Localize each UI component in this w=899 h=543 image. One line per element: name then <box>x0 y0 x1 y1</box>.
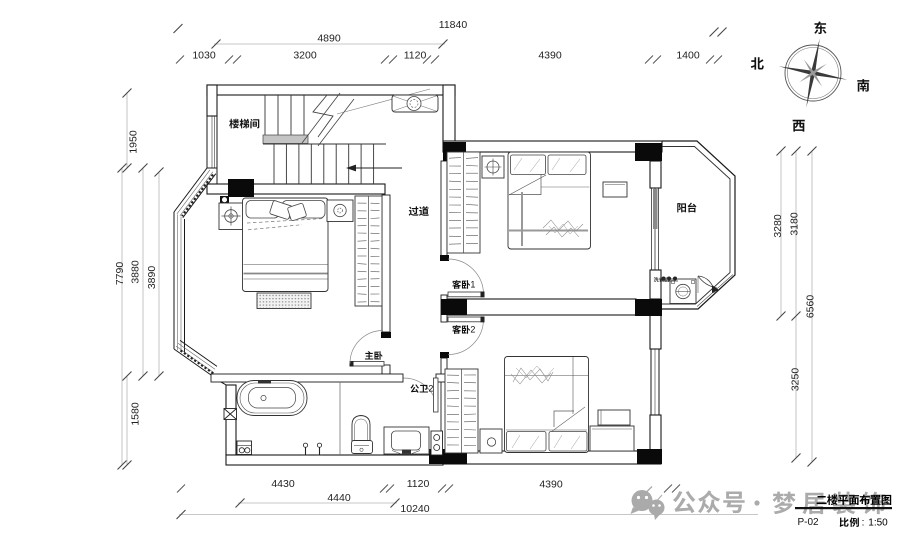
svg-text:4390: 4390 <box>539 479 563 491</box>
svg-text:4390: 4390 <box>538 50 562 62</box>
svg-text:3880: 3880 <box>130 260 142 284</box>
svg-text:1950: 1950 <box>128 130 140 154</box>
svg-text:1400: 1400 <box>676 50 700 62</box>
svg-text:1120: 1120 <box>404 50 427 62</box>
svg-text:7790: 7790 <box>114 262 126 286</box>
svg-text:4440: 4440 <box>327 492 351 504</box>
svg-text:10240: 10240 <box>400 503 429 515</box>
svg-text:P-02: P-02 <box>797 517 819 528</box>
svg-text:3280: 3280 <box>772 214 784 238</box>
svg-text:4890: 4890 <box>317 33 341 45</box>
svg-text:2: 2 <box>470 325 475 335</box>
svg-text:1: 1 <box>470 280 475 290</box>
svg-text:1120: 1120 <box>407 478 430 490</box>
svg-text:6560: 6560 <box>805 295 817 319</box>
svg-text:3250: 3250 <box>790 368 802 392</box>
svg-text:3180: 3180 <box>789 212 801 236</box>
svg-text:1:50: 1:50 <box>868 518 888 529</box>
svg-text::: : <box>862 518 865 529</box>
svg-text:2: 2 <box>428 384 433 394</box>
svg-text:1030: 1030 <box>192 50 216 62</box>
svg-text:4430: 4430 <box>271 478 295 490</box>
svg-text:11840: 11840 <box>439 19 468 31</box>
svg-text:3890: 3890 <box>146 266 158 290</box>
svg-text:3200: 3200 <box>293 50 317 62</box>
svg-text:1580: 1580 <box>130 402 142 426</box>
